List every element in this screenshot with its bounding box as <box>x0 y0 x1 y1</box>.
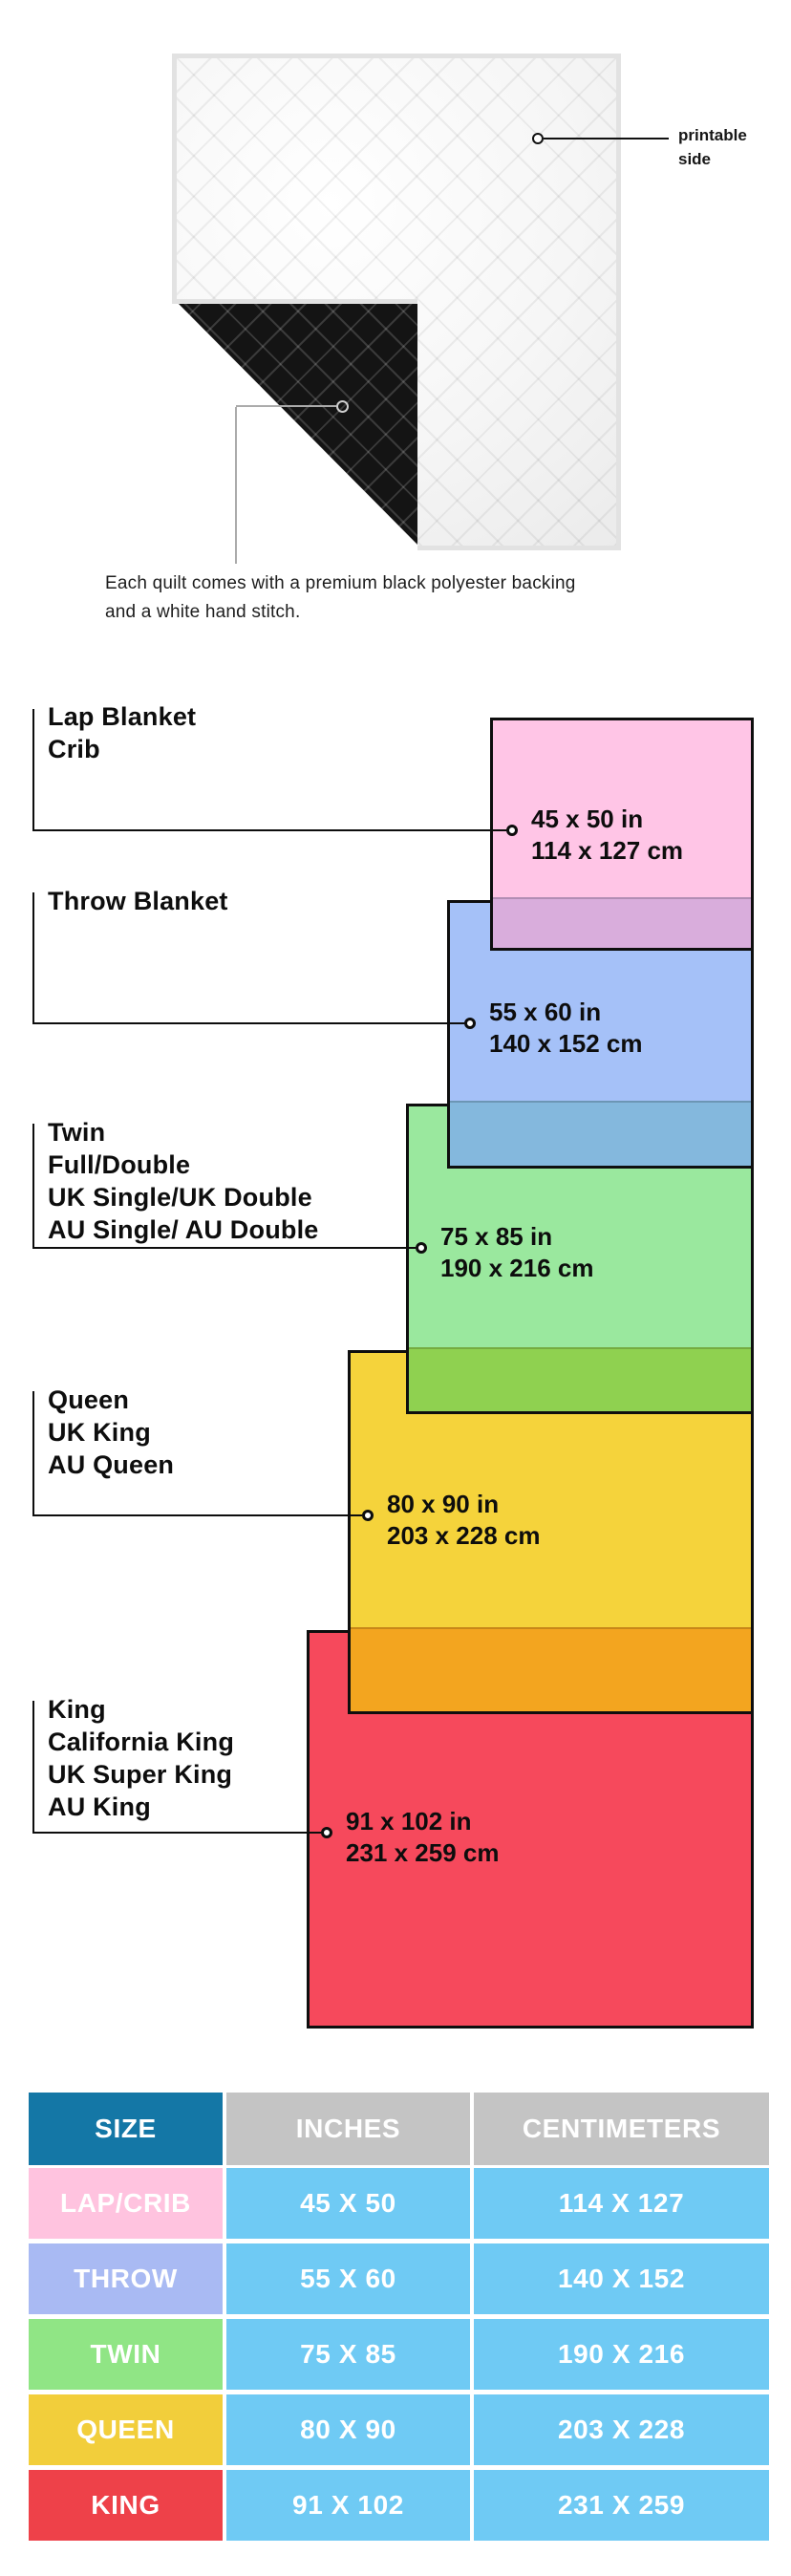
label-line: Throw Blanket <box>48 885 228 917</box>
label-line: Full/Double <box>48 1148 319 1181</box>
label-throw: Throw Blanket <box>48 885 228 917</box>
dimensions-throw: 55 x 60 in 140 x 152 cm <box>489 997 642 1060</box>
leader-tick-lap <box>32 709 34 831</box>
overlap-band-lap-over-throw <box>493 897 751 948</box>
leader-tick-queen <box>32 1391 34 1516</box>
table-row-lap-inches: 45 X 50 <box>226 2168 470 2239</box>
table-row-king-cm: 231 X 259 <box>474 2470 769 2541</box>
backing-callout-line-vertical <box>235 407 237 564</box>
label-line: California King <box>48 1726 234 1758</box>
dimension-cm: 140 x 152 cm <box>489 1028 642 1060</box>
label-line: Crib <box>48 733 196 765</box>
label-lap-crib: Lap Blanket Crib <box>48 700 196 765</box>
label-queen: Queen UK King AU Queen <box>48 1384 174 1481</box>
label-line: UK Super King <box>48 1758 234 1791</box>
table-row-queen-cm: 203 X 228 <box>474 2394 769 2465</box>
overlap-band-throw-over-twin <box>450 1101 751 1166</box>
label-line: Twin <box>48 1116 319 1148</box>
table-row-king-size: KING <box>29 2470 223 2541</box>
dimension-cm: 203 x 228 cm <box>387 1520 540 1552</box>
leader-line-lap <box>32 829 506 831</box>
backing-caption: Each quilt comes with a premium black po… <box>105 569 583 628</box>
dimension-cm: 190 x 216 cm <box>440 1253 593 1284</box>
dimension-inches: 91 x 102 in <box>346 1806 499 1837</box>
overlap-band-twin-over-queen <box>409 1347 751 1411</box>
label-line: AU Queen <box>48 1449 174 1481</box>
table-row-lap-cm: 114 X 127 <box>474 2168 769 2239</box>
backing-callout-dot <box>336 400 349 413</box>
table-row-queen-inches: 80 X 90 <box>226 2394 470 2465</box>
table-row-queen-size: QUEEN <box>29 2394 223 2465</box>
label-line: UK King <box>48 1416 174 1449</box>
leader-dot-throw <box>464 1018 476 1029</box>
leader-tick-twin <box>32 1124 34 1249</box>
table-row-throw-size: THROW <box>29 2243 223 2314</box>
table-header-inches: INCHES <box>226 2093 470 2165</box>
table-row-throw-inches: 55 X 60 <box>226 2243 470 2314</box>
quilt-photo <box>172 54 621 550</box>
printable-side-label: printable side <box>678 124 783 171</box>
dimension-inches: 45 x 50 in <box>531 804 683 835</box>
label-king: King California King UK Super King AU Ki… <box>48 1693 234 1823</box>
printable-side-callout-dot <box>532 133 544 144</box>
dimension-inches: 80 x 90 in <box>387 1489 540 1520</box>
label-line: UK Single/UK Double <box>48 1181 319 1213</box>
table-header-centimeters: CENTIMETERS <box>474 2093 769 2165</box>
table-row-throw-cm: 140 X 152 <box>474 2243 769 2314</box>
dimensions-king: 91 x 102 in 231 x 259 cm <box>346 1806 499 1869</box>
label-line: Lap Blanket <box>48 700 196 733</box>
leader-line-twin <box>32 1247 416 1249</box>
label-line: Queen <box>48 1384 174 1416</box>
dimensions-lap: 45 x 50 in 114 x 127 cm <box>531 804 683 867</box>
dimension-inches: 55 x 60 in <box>489 997 642 1028</box>
label-twin: Twin Full/Double UK Single/UK Double AU … <box>48 1116 319 1246</box>
leader-tick-throw <box>32 892 34 1024</box>
label-line: AU King <box>48 1791 234 1823</box>
leader-dot-lap <box>506 825 518 836</box>
dimensions-twin: 75 x 85 in 190 x 216 cm <box>440 1221 593 1284</box>
leader-dot-king <box>321 1827 332 1838</box>
leader-dot-queen <box>362 1510 374 1521</box>
printable-side-callout-line <box>544 138 669 140</box>
backing-callout-line-horizontal <box>236 405 336 407</box>
leader-dot-twin <box>416 1242 427 1254</box>
dimension-cm: 231 x 259 cm <box>346 1837 499 1869</box>
leader-tick-king <box>32 1701 34 1834</box>
dimension-cm: 114 x 127 cm <box>531 835 683 867</box>
table-row-twin-size: TWIN <box>29 2319 223 2390</box>
table-row-lap-size: LAP/CRIB <box>29 2168 223 2239</box>
dimension-inches: 75 x 85 in <box>440 1221 593 1253</box>
leader-line-king <box>32 1832 321 1834</box>
table-row-king-inches: 91 X 102 <box>226 2470 470 2541</box>
leader-line-throw <box>32 1022 464 1024</box>
leader-line-queen <box>32 1514 362 1516</box>
quilt-size-infographic: printable side Each quilt comes with a p… <box>0 0 791 2576</box>
size-table: SIZE INCHES CENTIMETERS LAP/CRIB 45 X 50… <box>29 2093 769 2541</box>
label-line: King <box>48 1693 234 1726</box>
label-line: AU Single/ AU Double <box>48 1213 319 1246</box>
table-header-size: SIZE <box>29 2093 223 2165</box>
overlap-band-queen-over-king <box>351 1627 751 1711</box>
quilt-black-backing-fold <box>179 304 417 545</box>
dimensions-queen: 80 x 90 in 203 x 228 cm <box>387 1489 540 1552</box>
table-row-twin-inches: 75 X 85 <box>226 2319 470 2390</box>
table-row-twin-cm: 190 X 216 <box>474 2319 769 2390</box>
